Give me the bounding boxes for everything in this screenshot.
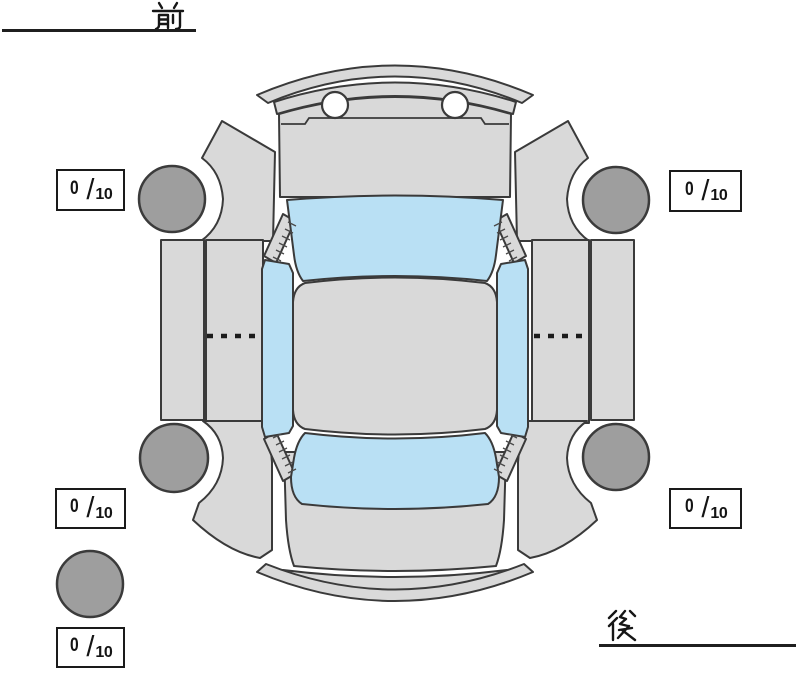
tire-front-right — [583, 167, 649, 233]
side-window-left — [262, 260, 293, 437]
rocker-strip-right — [591, 240, 634, 420]
car-top-view-drawing — [0, 0, 800, 675]
tire-rear-right — [583, 424, 649, 490]
headlight-left — [322, 92, 348, 118]
tread-slash: / — [86, 177, 94, 203]
headlight-right — [442, 92, 468, 118]
front-fender-right — [515, 121, 589, 241]
tread-box-front-right: 0/10 — [669, 170, 742, 212]
tread-value: 0 — [70, 178, 79, 200]
tread-box-rear-left: 0/10 — [55, 488, 126, 529]
tread-slash: / — [701, 178, 709, 204]
roof — [293, 278, 497, 435]
tread-max: 10 — [95, 505, 112, 523]
tread-max: 10 — [710, 505, 727, 523]
door-panel-left — [206, 240, 263, 423]
front-kanji-icon — [151, 1, 185, 31]
tread-value: 0 — [685, 496, 694, 518]
tread-max: 10 — [95, 186, 112, 204]
vehicle-condition-diagram: 前 後 0/10 0/10 0/10 0/10 0/10 — [0, 0, 800, 675]
tread-slash: / — [86, 495, 94, 521]
tread-box-rear-right: 0/10 — [669, 488, 742, 529]
tread-value: 0 — [70, 496, 79, 518]
tread-box-front-left: 0/10 — [56, 169, 125, 211]
rear-underline — [599, 644, 796, 647]
door-panel-right — [532, 240, 589, 423]
tread-value: 0 — [685, 179, 694, 201]
rear-label: 後 — [605, 608, 639, 642]
front-label: 前 — [151, 1, 185, 31]
windshield — [287, 196, 503, 282]
front-fender-left — [201, 121, 275, 241]
tire-spare — [57, 551, 123, 617]
rocker-strip-left — [161, 240, 204, 420]
tread-max: 10 — [710, 187, 727, 205]
tread-slash: / — [701, 495, 709, 521]
tread-max: 10 — [95, 644, 112, 662]
front-underline — [2, 29, 196, 32]
tread-slash: / — [86, 634, 94, 660]
tire-front-left — [139, 166, 205, 232]
hood — [279, 97, 511, 197]
rear-window — [291, 433, 499, 509]
rear-fender-right — [518, 421, 597, 558]
tread-box-spare: 0/10 — [56, 627, 125, 668]
tread-value: 0 — [70, 635, 79, 657]
side-window-right — [497, 260, 528, 437]
rear-kanji-icon — [605, 608, 639, 642]
tire-rear-left — [140, 424, 208, 492]
